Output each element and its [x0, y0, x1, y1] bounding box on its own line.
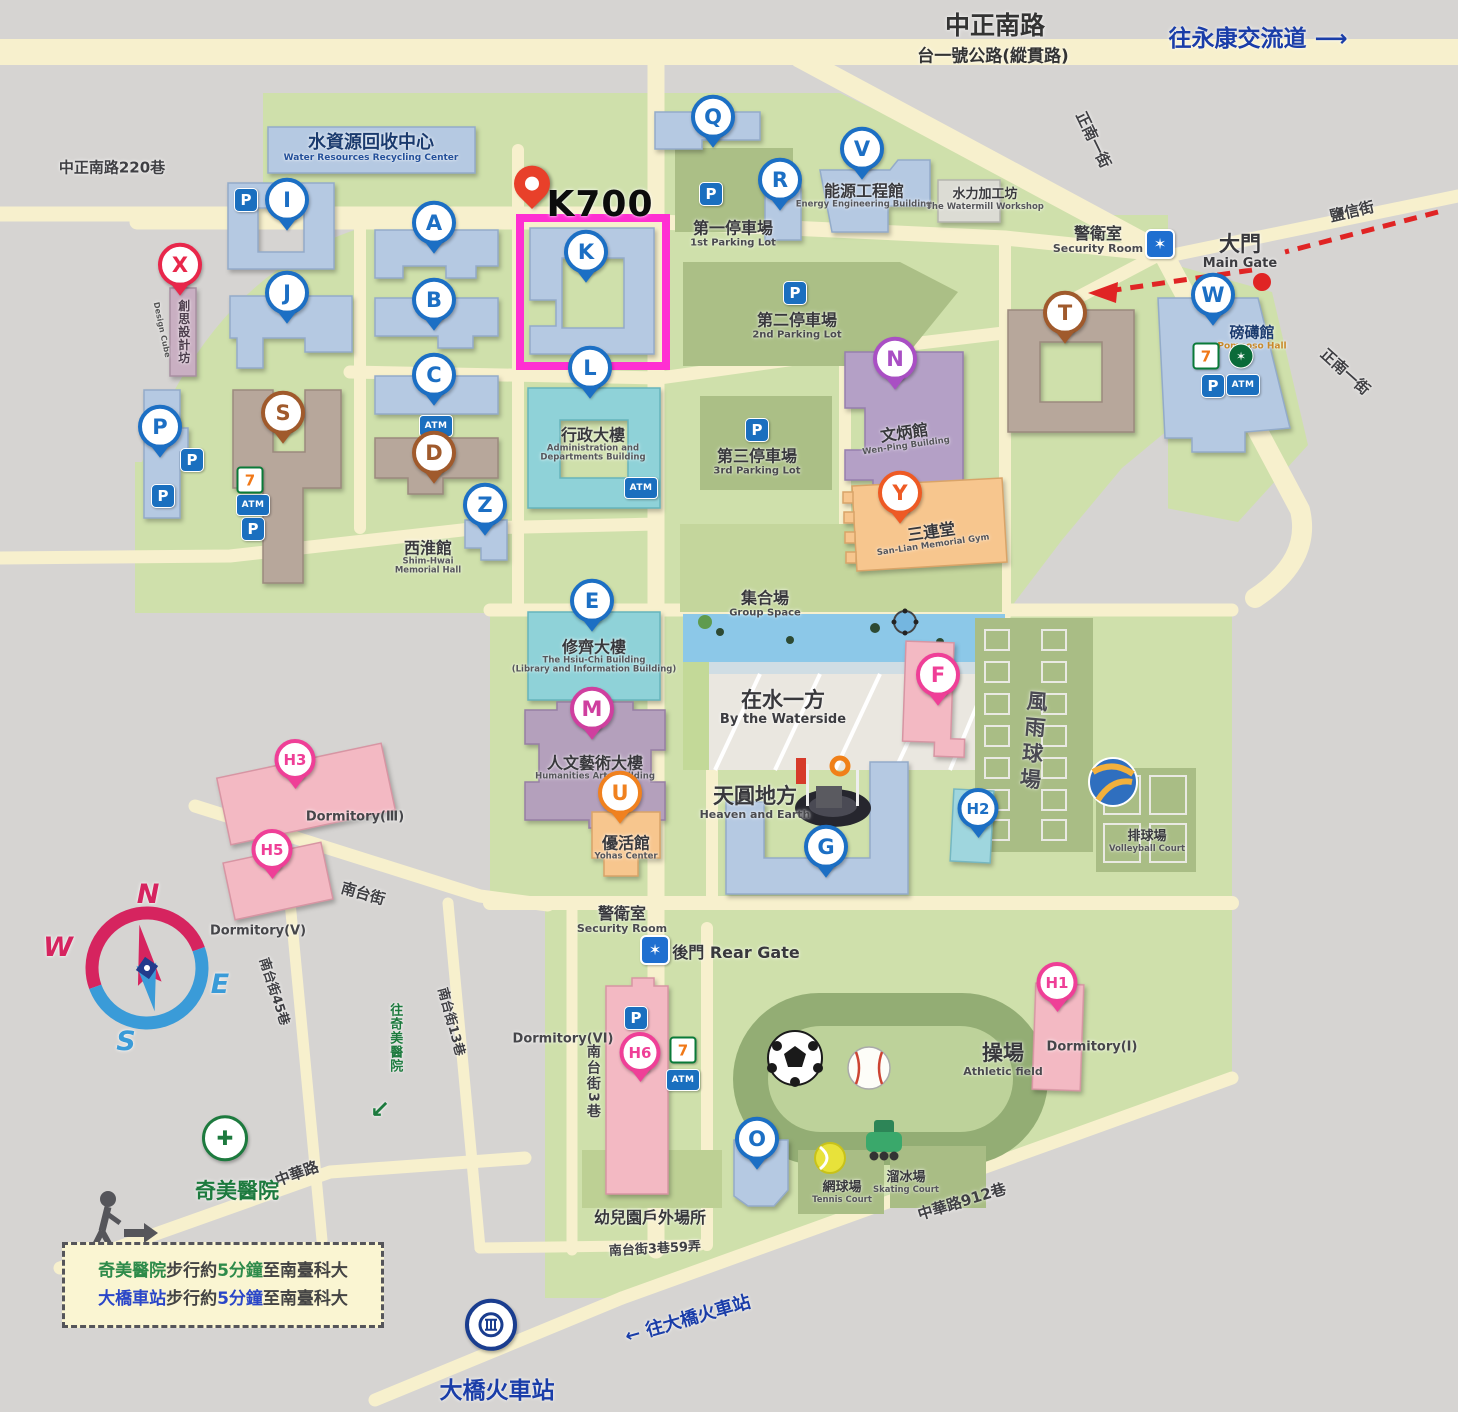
legend-text: 步行約 — [166, 1289, 217, 1309]
compass-e: E — [211, 970, 229, 1000]
legend-text: 步行約 — [166, 1261, 217, 1281]
tennis-ball-icon — [815, 1143, 845, 1173]
compass-s: S — [116, 1027, 135, 1057]
legend-text: 至南臺科大 — [263, 1261, 348, 1281]
legend-text: 5分鐘 — [217, 1289, 263, 1309]
campus-map-base — [0, 0, 1458, 1412]
campus-map: 中正南路台一號公路(縱貫路)往永康交流道 ⟶中正南路220巷正南一街鹽信街正南一… — [0, 0, 1458, 1412]
walking-time-legend: 奇美醫院步行約5分鐘至南臺科大 大橋車站步行約5分鐘至南臺科大 — [62, 1242, 384, 1328]
legend-text: 奇美醫院 — [98, 1261, 166, 1281]
volleyball-icon — [1089, 758, 1137, 806]
main-gate-dot — [1253, 273, 1271, 291]
legend-text: 至南臺科大 — [263, 1289, 348, 1309]
legend-text: 5分鐘 — [217, 1261, 263, 1281]
compass-w: W — [43, 933, 73, 963]
legend-line-daqiao: 大橋車站步行約5分鐘至南臺科大 — [73, 1285, 373, 1313]
legend-line-chimei: 奇美醫院步行約5分鐘至南臺科大 — [73, 1257, 373, 1285]
baseball-icon — [848, 1047, 890, 1089]
legend-text: 大橋車站 — [98, 1289, 166, 1309]
compass-n: N — [137, 880, 160, 910]
